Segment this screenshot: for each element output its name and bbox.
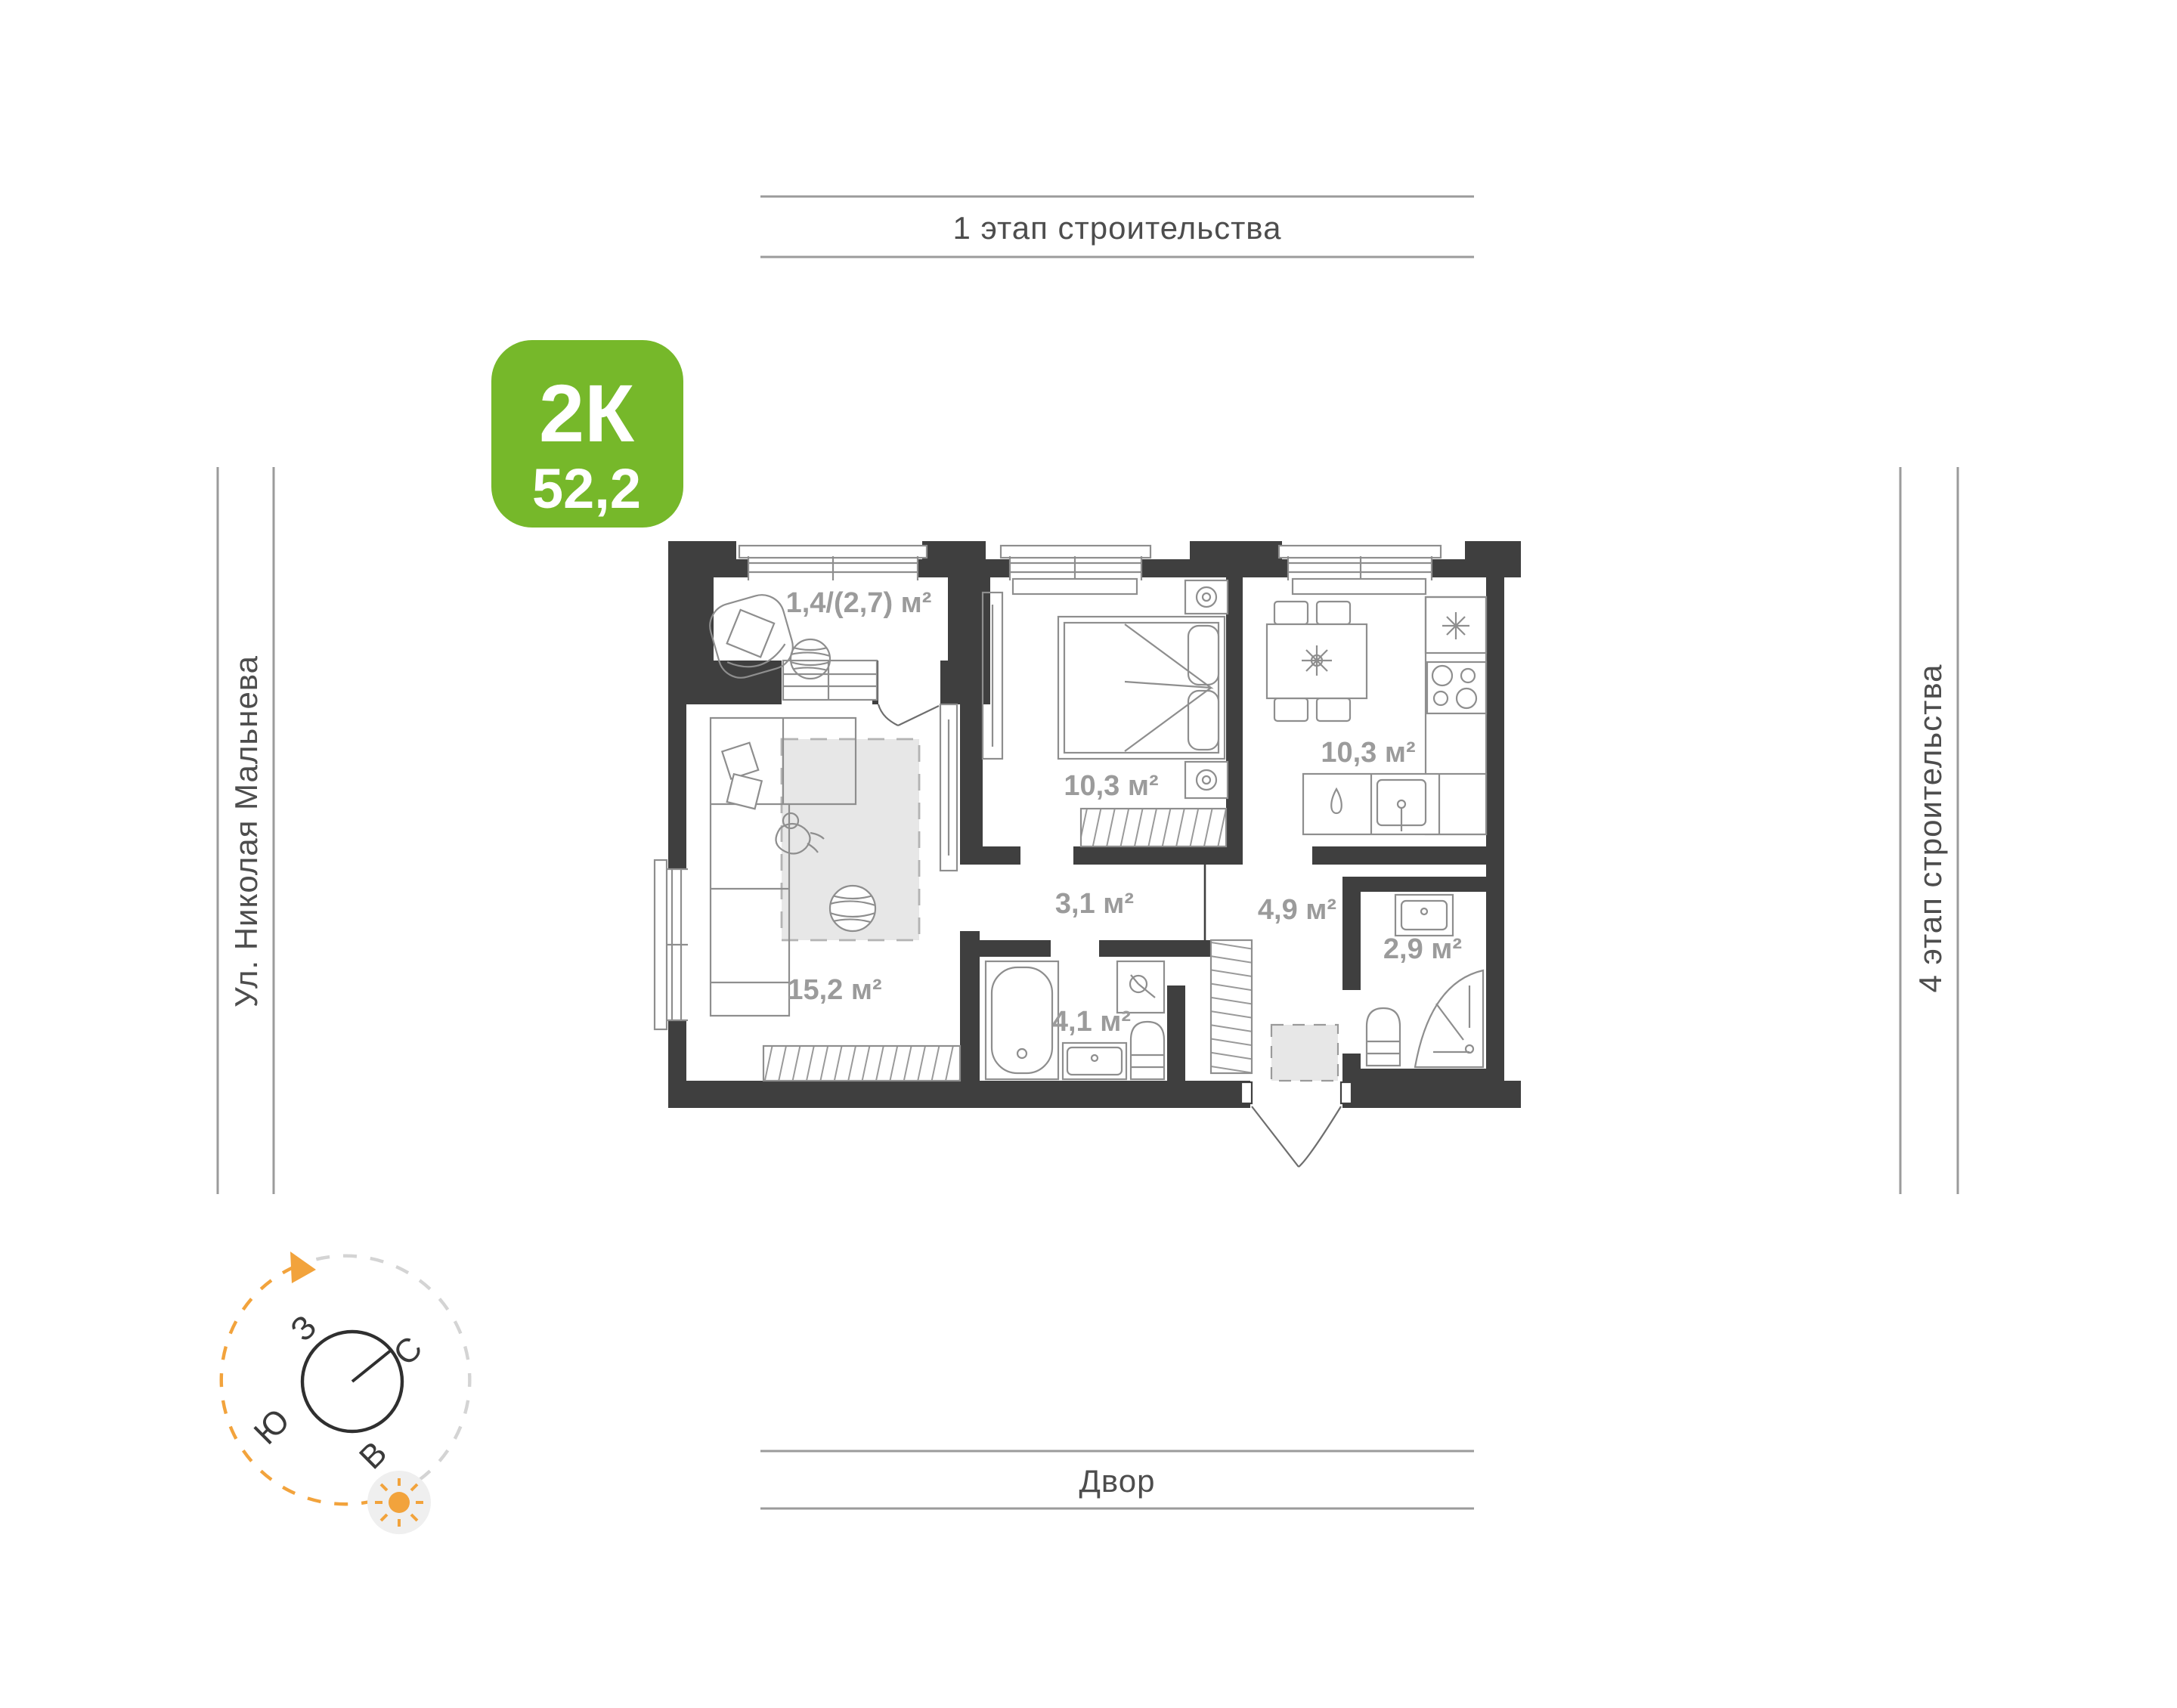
stage-label-right: 4 этап строительства <box>1900 467 1958 1194</box>
door-opening <box>1339 990 1364 1054</box>
stage-label-bottom: Двор <box>760 1451 1474 1508</box>
tv-cabinet <box>940 704 957 871</box>
compass-arrow-icon <box>290 1252 316 1283</box>
compass-west-label: З <box>283 1308 324 1348</box>
entry-pouf <box>1271 1025 1338 1081</box>
nightstand-bottom <box>1185 762 1228 798</box>
room-label-shower-room: 2,9 м² <box>1383 933 1462 965</box>
wall <box>1226 577 1243 846</box>
wall <box>1167 986 1185 1081</box>
bathtub <box>986 961 1058 1079</box>
courtyard-label: Двор <box>1079 1463 1155 1499</box>
wall <box>1342 877 1486 892</box>
street-label-left: Ул. Николая Мальнева <box>218 467 274 1194</box>
coffee-pouf <box>830 886 875 931</box>
duct-niche <box>1342 865 1480 877</box>
wall-pilaster <box>1465 541 1521 561</box>
shower-mixer-box <box>1117 961 1164 1013</box>
floor-plan: 1,4/(2,7) м² 10,3 м² 10,3 м² 15,2 м² 3,1… <box>655 541 1521 1167</box>
construction-stage-4-label: 4 этап строительства <box>1912 664 1948 992</box>
entrance-opening <box>1250 1078 1342 1111</box>
kitchen-bottom-counter <box>1303 774 1486 834</box>
hall-wardrobe <box>1211 940 1252 1073</box>
construction-stage-1-label: 1 этап строительства <box>952 210 1281 246</box>
nightstand-top <box>1185 580 1228 614</box>
badge-area-value: 52,2 <box>532 457 641 520</box>
wall-pilaster <box>1190 541 1282 561</box>
room-label-kitchen: 10,3 м² <box>1321 737 1415 769</box>
door-opening <box>1243 843 1312 868</box>
wc-sink <box>1395 895 1453 936</box>
stage-label-top: 1 этап строительства <box>760 196 1474 257</box>
wall-pilaster <box>922 541 986 561</box>
door-opening <box>1020 843 1073 868</box>
toilet-bathroom <box>1131 1022 1164 1079</box>
compass: З С Ю В <box>221 1252 470 1534</box>
corner-shower <box>1415 970 1483 1067</box>
dining-table <box>1267 602 1367 721</box>
room-label-corridor: 3,1 м² <box>1055 888 1134 920</box>
apartment-plan-figure: 1 этап строительства Двор Ул. Николая Ма… <box>0 0 2177 1708</box>
door-opening <box>957 865 986 931</box>
room-label-living-room: 15,2 м² <box>787 974 881 1006</box>
wall <box>960 704 983 846</box>
bathroom-vanity <box>1063 1043 1126 1079</box>
badge-rooms-count: 2К <box>539 367 635 459</box>
apartment-badge: 2К 52,2 <box>491 340 683 528</box>
sun-icon <box>367 1471 431 1534</box>
room-label-balcony: 1,4/(2,7) м² <box>786 587 932 619</box>
wall <box>1486 559 1504 1108</box>
flower-icon <box>1302 645 1332 676</box>
balcony-door-opening <box>878 659 940 706</box>
page: 1 этап строительства Двор Ул. Николая Ма… <box>0 0 2177 1708</box>
bedroom-wardrobe <box>1081 809 1226 846</box>
room-label-entrance-hall: 4,9 м² <box>1258 894 1336 926</box>
wall-pilaster <box>668 541 736 561</box>
compass-east-label: В <box>352 1434 394 1476</box>
room-label-bathroom: 4,1 м² <box>1052 1006 1131 1038</box>
room-label-bedroom: 10,3 м² <box>1064 770 1158 802</box>
bed <box>1058 617 1225 759</box>
window-balcony-inner <box>783 661 877 700</box>
living-wardrobe <box>763 1046 960 1081</box>
wall <box>1342 1069 1504 1108</box>
toilet-wc <box>1367 1008 1400 1066</box>
street-name-label: Ул. Николая Мальнева <box>228 655 264 1007</box>
balcony-door <box>878 704 939 726</box>
duct-niche <box>1185 957 1211 1081</box>
compass-south-label: Ю <box>247 1402 297 1452</box>
door-opening <box>1051 937 1099 960</box>
